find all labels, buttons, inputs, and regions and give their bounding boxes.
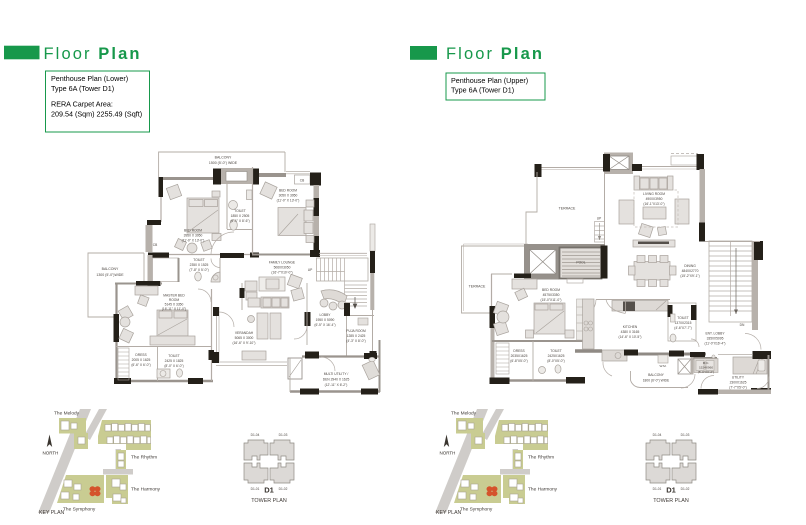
svg-text:(7'-8" X 5'-0"): (7'-8" X 5'-0")	[189, 268, 208, 272]
svg-text:(16'-7"X10'-0"): (16'-7"X10'-0")	[271, 271, 292, 275]
svg-text:(16'-11" X 11'-0"): (16'-11" X 11'-0")	[162, 307, 186, 311]
svg-text:(6'-1" X 8'-6"): (6'-1" X 8'-6")	[230, 219, 249, 223]
svg-text:3950 X 3950: 3950 X 3950	[184, 234, 203, 238]
svg-text:Type 6A (Tower D1): Type 6A (Tower D1)	[51, 84, 114, 93]
svg-text:1500 (5'-0") WIDE: 1500 (5'-0") WIDE	[209, 161, 238, 165]
svg-text:TERRACE: TERRACE	[559, 207, 576, 211]
svg-text:BALCONY: BALCONY	[648, 373, 665, 377]
svg-text:PUJA ROOM: PUJA ROOM	[346, 329, 366, 333]
svg-text:Penthouse Plan (Lower): Penthouse Plan (Lower)	[51, 74, 128, 83]
svg-text:LIVING ROOM: LIVING ROOM	[643, 192, 665, 196]
svg-text:1300 (5'-0")WIDE: 1300 (5'-0")WIDE	[96, 273, 124, 277]
svg-text:UP: UP	[597, 217, 601, 221]
svg-text:2035X1625: 2035X1625	[511, 354, 528, 358]
svg-text:BED ROOM: BED ROOM	[279, 189, 297, 193]
svg-text:TOILET: TOILET	[677, 316, 688, 320]
svg-text:1800 (6'-0") WIDE: 1800 (6'-0") WIDE	[643, 379, 670, 383]
svg-text:Floor Plan: Floor Plan	[44, 45, 142, 63]
svg-text:DRESS: DRESS	[513, 349, 525, 353]
svg-text:(15'-2"X9'-1"): (15'-2"X9'-1")	[680, 274, 699, 278]
svg-text:Type 6A (Tower D1): Type 6A (Tower D1)	[451, 86, 514, 95]
svg-text:FAMILY LOUNGE: FAMILY LOUNGE	[269, 261, 296, 265]
svg-text:(8'-0"X5'-0"): (8'-0"X5'-0")	[547, 359, 565, 363]
svg-text:(4'-6"X7'-7"): (4'-6"X7'-7")	[674, 326, 692, 330]
svg-text:(8'-0" X 6'-0"): (8'-0" X 6'-0")	[164, 364, 183, 368]
svg-text:ENT. LOBBY: ENT. LOBBY	[705, 332, 725, 336]
svg-text:BED ROOM: BED ROOM	[184, 229, 202, 233]
svg-text:M.C.: M.C.	[703, 361, 710, 365]
svg-text:LOBBY: LOBBY	[320, 313, 332, 317]
svg-text:1285 X 2425: 1285 X 2425	[347, 334, 366, 338]
svg-text:(6'-6" X 6'-0"): (6'-6" X 6'-0")	[131, 363, 150, 367]
svg-text:BALCONY: BALCONY	[215, 156, 232, 160]
svg-text:2425 X 1825: 2425 X 1825	[165, 359, 184, 363]
svg-text:(6'-8"X5'-0"): (6'-8"X5'-0")	[510, 359, 528, 363]
svg-text:4900X3950: 4900X3950	[646, 197, 663, 201]
svg-text:UTILITY: UTILITY	[732, 376, 745, 380]
svg-text:Floor Plan: Floor Plan	[446, 45, 544, 63]
svg-text:1524X960: 1524X960	[699, 366, 713, 370]
svg-text:4380 X 3165: 4380 X 3165	[621, 330, 640, 334]
svg-text:TOILET: TOILET	[193, 258, 204, 262]
svg-text:KITCHEN: KITCHEN	[623, 325, 638, 329]
svg-text:TOILET: TOILET	[168, 354, 179, 358]
svg-text:W.M.: W.M.	[659, 364, 666, 368]
svg-text:TOILET: TOILET	[234, 209, 245, 213]
svg-text:MASTER BED: MASTER BED	[163, 294, 185, 298]
svg-text:(11'-0"X16'-4"): (11'-0"X16'-4")	[705, 342, 726, 346]
svg-text:CB: CB	[300, 179, 304, 183]
svg-text:MULTI UTILITY /: MULTI UTILITY /	[324, 372, 349, 376]
svg-text:4840X2770: 4840X2770	[682, 269, 699, 273]
svg-text:TOILET: TOILET	[550, 349, 561, 353]
svg-text:1850 X 2505: 1850 X 2505	[231, 214, 250, 218]
svg-text:POOL: POOL	[576, 261, 585, 265]
svg-text:BED ROOM: BED ROOM	[542, 288, 560, 292]
svg-text:DEN 2940 X 1625: DEN 2940 X 1625	[323, 378, 350, 382]
svg-text:(12'-11" X 6'-2"): (12'-11" X 6'-2")	[325, 383, 348, 387]
svg-text:ROOM: ROOM	[169, 298, 180, 302]
svg-text:3050 X 3950: 3050 X 3950	[279, 194, 298, 198]
svg-text:5065 X 3000: 5065 X 3000	[235, 336, 254, 340]
svg-text:CB: CB	[153, 243, 157, 247]
svg-text:209.54 (Sqm) 2255.49 (Sqft): 209.54 (Sqm) 2255.49 (Sqft)	[51, 110, 142, 119]
svg-text:Penthouse Plan (Upper): Penthouse Plan (Upper)	[451, 76, 528, 85]
svg-text:(11'-0" X 13'-0"): (11'-0" X 13'-0")	[277, 199, 300, 203]
svg-text:3350X5095: 3350X5095	[707, 337, 724, 341]
svg-text:1370X2315: 1370X2315	[675, 321, 692, 325]
svg-text:(15'-0"X11'-0"): (15'-0"X11'-0")	[541, 298, 562, 302]
svg-text:4575X3350: 4575X3350	[543, 293, 560, 297]
svg-text:2425X1625: 2425X1625	[548, 354, 565, 358]
svg-text:BALCONY: BALCONY	[102, 267, 119, 271]
svg-text:DRESS: DRESS	[135, 353, 147, 357]
svg-text:(6'-5" X 16'-4"): (6'-5" X 16'-4")	[314, 323, 335, 327]
svg-text:2350 X 1525: 2350 X 1525	[190, 263, 209, 267]
svg-text:(16'-1"X13'-0"): (16'-1"X13'-0")	[643, 202, 664, 206]
svg-text:(5'-0"X3'-2"): (5'-0"X3'-2")	[698, 370, 714, 374]
svg-text:TERRACE: TERRACE	[469, 285, 486, 289]
svg-text:(7'-7"X5'-0"): (7'-7"X5'-0")	[729, 386, 747, 390]
svg-text:(4'-3" X 8'-0"): (4'-3" X 8'-0")	[346, 339, 365, 343]
svg-text:1950 X 5090: 1950 X 5090	[316, 318, 335, 322]
svg-text:2005 X 1625: 2005 X 1625	[132, 358, 151, 362]
svg-text:DINING: DINING	[684, 264, 696, 268]
svg-text:(14'-6" X 10'-5"): (14'-6" X 10'-5")	[618, 335, 641, 339]
svg-text:(11'-0" X 13'-0"): (11'-0" X 13'-0")	[182, 239, 205, 243]
svg-text:2300X1625: 2300X1625	[730, 381, 747, 385]
svg-text:UP: UP	[308, 268, 313, 272]
svg-text:RERA Carpet Area:: RERA Carpet Area:	[51, 100, 113, 109]
svg-text:VERANDAH: VERANDAH	[235, 331, 254, 335]
svg-text:DN: DN	[740, 323, 745, 327]
svg-text:5145 X 3350: 5145 X 3350	[165, 303, 184, 307]
svg-text:(16'-6" X 9'-10"): (16'-6" X 9'-10")	[232, 341, 255, 345]
svg-text:5060X3050: 5060X3050	[274, 266, 291, 270]
